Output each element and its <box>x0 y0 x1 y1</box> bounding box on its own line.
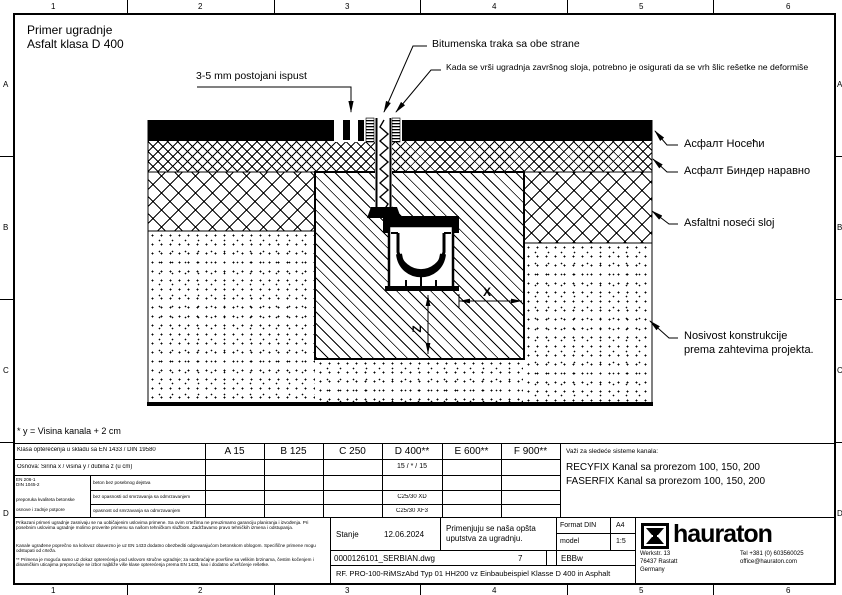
format-label: Format DIN <box>560 522 596 530</box>
drawing-code: EBBw <box>561 554 583 563</box>
leader-ispust <box>197 87 351 112</box>
foundation-d400-value: 15 / * / 15 <box>382 463 442 470</box>
address-line2: 76437 Rastatt <box>640 559 677 566</box>
disclaimer-2: Kanale ugrađene poprečno na kolovoz obav… <box>16 543 328 555</box>
model-value: 1:5 <box>616 538 626 546</box>
callout-bitumen: Bitumenska traka sa obe strane <box>432 38 580 50</box>
concrete-d400-xd: C25/30 XD <box>382 494 442 500</box>
hauraton-logo-icon <box>641 523 669 549</box>
channel-top-flange <box>383 216 459 226</box>
cad-sheet: 1 2 3 4 5 6 1 2 3 4 5 6 A B C D A B C D <box>0 0 842 595</box>
footnote-y: * y = Visina kanala + 2 cm <box>17 426 121 436</box>
callout-asfaltni-sloj: Asfaltni noseći sloj <box>684 217 775 230</box>
page-title-line2: Asfalt klasa D 400 <box>27 38 124 52</box>
format-value: A4 <box>616 522 625 530</box>
note-line1: Primenjuju se naša opšta <box>446 524 536 533</box>
concrete-subrow-3: opasnost od smrzavanja sa odmrzavanjem <box>93 508 203 513</box>
file-name: 0000126101_SERBIAN.dwg <box>334 554 435 563</box>
callout-kada: Kada se vrši ugradnja završnog sloja, po… <box>446 62 808 72</box>
systems-heading: Važi za sledeće sisteme kanala: <box>566 448 658 455</box>
address-line1: Werkstr. 13 <box>640 551 670 558</box>
stanje-label: Stanje <box>336 530 359 539</box>
class-b125: B 125 <box>264 446 323 457</box>
leader-asfalt-binder <box>653 159 678 172</box>
concrete-d400-xf3: C25/30 XF3 <box>382 508 442 514</box>
system-recyfix: RECYFIX Kanal sa prorezom 100, 150, 200 <box>566 462 760 474</box>
concrete-note-2: osnove i zadnje potpore <box>16 507 88 512</box>
bitumen-tape-left <box>366 118 374 142</box>
note-line2: uputstva za ugradnju. <box>446 534 523 543</box>
class-a15: A 15 <box>205 446 264 457</box>
page-title-line1: Primer ugradnje <box>27 24 112 38</box>
dimension-x-label: X <box>483 285 491 299</box>
system-faserfix: FASERFIX Kanal sa prorezom 100, 150, 200 <box>566 476 765 488</box>
class-d400: D 400** <box>382 446 442 457</box>
disclaimer-1: Prikazani primeri ugradnje zasnivaju se … <box>16 520 328 540</box>
callout-asfalt-binder: Асфалт Биндер наравно <box>684 165 810 178</box>
load-class-header: Klasa opterećenja u skladu sa EN 1433 / … <box>17 447 202 454</box>
foundation-row-label: Osnova: Širina x / visina y / dubina z (… <box>17 464 202 471</box>
leader-nosivost <box>650 321 678 338</box>
class-e600: E 600** <box>442 446 501 457</box>
leader-bitumen <box>384 46 427 112</box>
concrete-subrow-2: bez opasnosti od smrzavanja sa odmrzavan… <box>93 494 203 499</box>
phone: Tel +381 (0) 603560025 <box>740 551 804 558</box>
callout-ispust: 3-5 mm postojani ispust <box>196 70 307 82</box>
leader-kada <box>396 70 441 112</box>
disclaimer-3: ** Primena je moguća samo uz dokaz opter… <box>16 557 328 579</box>
class-f900: F 900** <box>501 446 560 457</box>
hauraton-wordmark: hauraton <box>673 520 772 549</box>
model-label: model <box>560 538 579 546</box>
callout-nosivost-line2: prema zahtevima projekta. <box>684 344 814 357</box>
dimension-z-label: Z <box>410 325 424 332</box>
address-line3: Germany <box>640 567 665 574</box>
class-c250: C 250 <box>323 446 382 457</box>
bitumen-tape-right <box>392 118 400 142</box>
concrete-subrow-1: beton bez posebnog dejstva <box>93 480 203 485</box>
concrete-note-1: preporuka kvaliteta betonske <box>16 497 88 502</box>
sheet-number: 7 <box>518 554 522 563</box>
callout-asfalt-noseci: Асфалт Носећи <box>684 138 764 151</box>
email: office@hauraton.com <box>740 559 797 566</box>
drawing-name: RF. PRO-100-RiMSzAbd Typ 01 HH200 vz Ein… <box>336 570 610 579</box>
leader-asfalt-noseci <box>655 131 678 145</box>
stanje-date: 12.06.2024 <box>384 530 424 539</box>
concrete-code-2: DIN 1045-2 <box>16 482 88 487</box>
leader-asfaltni-sloj <box>652 211 678 224</box>
callout-nosivost-line1: Nosivost konstrukcije <box>684 330 787 343</box>
section-linework: X Z <box>0 0 842 595</box>
